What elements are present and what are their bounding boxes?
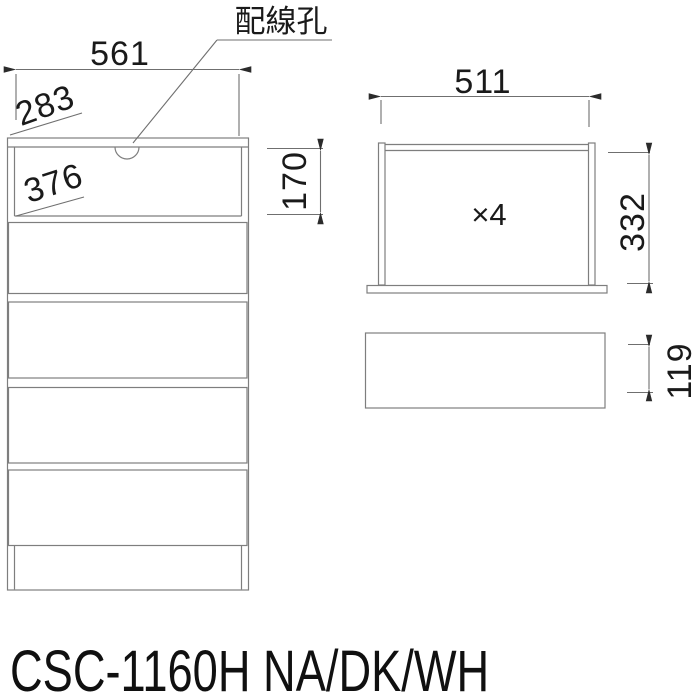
dim-drawer-inner-height: 332 bbox=[608, 153, 653, 284]
drawer-front bbox=[9, 470, 248, 546]
dim-top-depth: 283 bbox=[10, 78, 82, 135]
top-depth-value: 283 bbox=[11, 78, 80, 134]
dim-inner-width: 376 bbox=[16, 156, 88, 216]
overall-width-value: 561 bbox=[90, 35, 150, 73]
drawer-detail-view: ×4 bbox=[366, 143, 608, 408]
wiring-hole-label: 配線孔 bbox=[235, 4, 328, 39]
wiring-hole-notch bbox=[115, 147, 139, 159]
dim-drawer-front-height: 119 bbox=[627, 342, 699, 399]
drawer-front-height-value: 119 bbox=[661, 342, 699, 399]
drawer-front bbox=[9, 302, 248, 378]
drawer-inner-height-value: 332 bbox=[614, 192, 652, 252]
drawer-side-right bbox=[589, 143, 596, 285]
drawer-front bbox=[9, 223, 248, 294]
drawing-canvas: 配線孔 561 283 376 170 bbox=[0, 0, 700, 697]
drawer-inner-width-value: 511 bbox=[454, 63, 511, 101]
drawer-base-plate bbox=[367, 286, 607, 294]
drawer-quantity-label: ×4 bbox=[471, 197, 506, 232]
wiring-hole-callout: 配線孔 bbox=[133, 4, 332, 143]
drawer-side-left bbox=[379, 143, 386, 285]
open-section-height-value: 170 bbox=[276, 151, 314, 211]
inner-width-value: 376 bbox=[19, 156, 88, 211]
dim-open-section-height: 170 bbox=[267, 149, 323, 215]
product-model-code: CSC-1160H NA/DK/WH bbox=[10, 640, 489, 697]
drawer-front bbox=[9, 388, 248, 464]
drawer-front-panel bbox=[366, 333, 606, 408]
furniture-dimension-drawing: 配線孔 561 283 376 170 bbox=[0, 0, 700, 697]
dim-drawer-inner-width: 511 bbox=[381, 63, 589, 127]
